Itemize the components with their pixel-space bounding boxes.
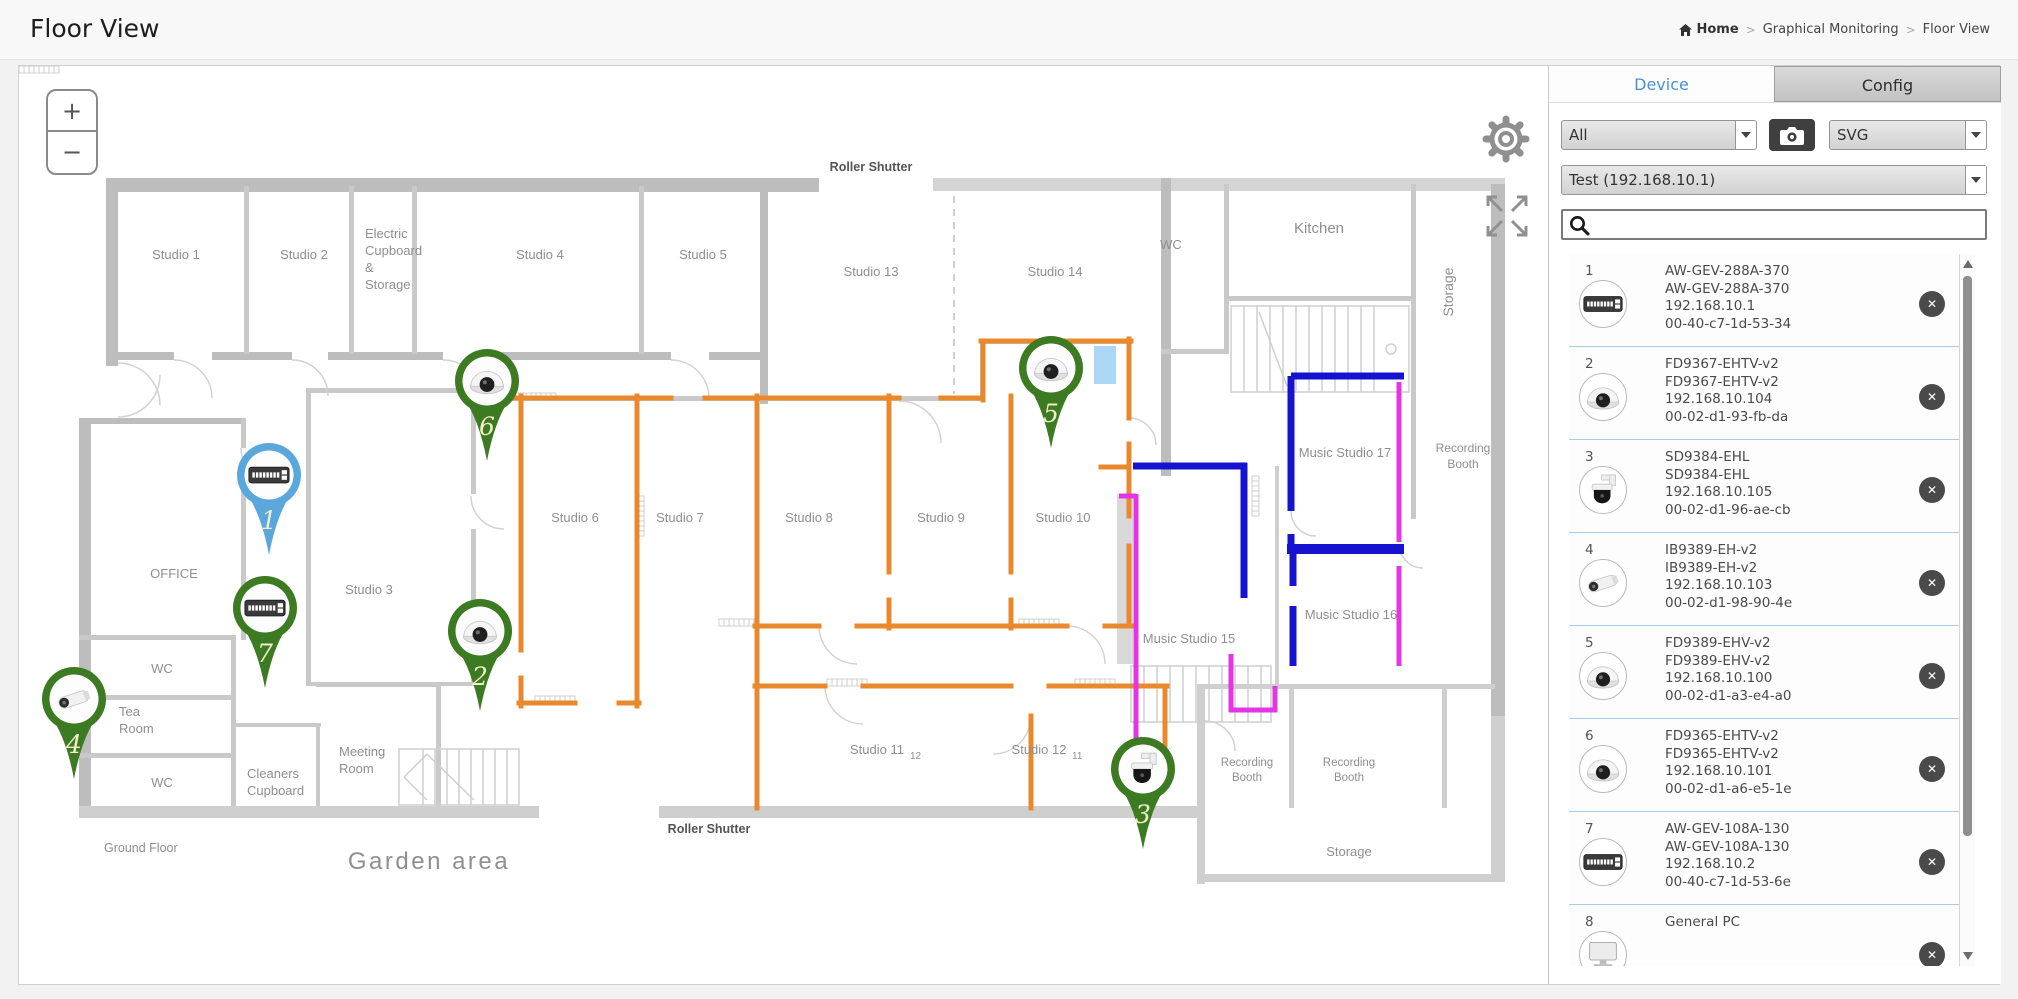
map-area: Studio 1Studio 2ElectricCupboard&Storage… [19, 66, 1548, 984]
fullscreen-button[interactable] [1481, 190, 1533, 242]
device-model: FD9367-EHTV-v2 [1665, 374, 1905, 392]
pin-number: 2 [471, 662, 488, 691]
pin-number: 7 [257, 639, 273, 668]
tab-config[interactable]: Config [1774, 66, 2001, 102]
map-pin-3[interactable]: 3 [1111, 737, 1175, 849]
pin-number: 5 [1043, 399, 1059, 428]
room-label: WC [151, 661, 173, 676]
chevron-down-icon [1965, 166, 1986, 194]
device-icon [1579, 652, 1627, 700]
device-model: AW-GEV-108A-130 [1665, 839, 1905, 857]
room-label: Studio 7 [656, 510, 704, 525]
device-ip: 192.168.10.100 [1665, 670, 1905, 688]
room-label: Roller Shutter [830, 160, 913, 174]
remove-device-button[interactable]: ✕ [1919, 849, 1945, 875]
device-number: 6 [1585, 728, 1665, 744]
page-title: Floor View [30, 14, 159, 43]
device-icon [1579, 931, 1627, 966]
remove-device-button[interactable]: ✕ [1919, 663, 1945, 689]
room-label: Studio 10 [1036, 510, 1091, 525]
panel-tabs: Device Config [1549, 66, 2001, 103]
room-label: Studio 6 [551, 510, 599, 525]
room-label: Studio 1 [152, 247, 200, 262]
search-box [1561, 209, 1987, 240]
device-model: FD9365-EHTV-v2 [1665, 746, 1905, 764]
map-pin-4[interactable]: 4 [42, 667, 106, 779]
device-number: 7 [1585, 821, 1665, 837]
expand-arrows-icon [1481, 190, 1533, 242]
device-list-item[interactable]: 1 AW-GEV-288A-370 AW-GEV-288A-370 192.16… [1569, 254, 1959, 347]
room-label: Recording [1323, 757, 1375, 769]
device-list-item[interactable]: 8 General PC ✕ [1569, 905, 1959, 966]
device-list: 1 AW-GEV-288A-370 AW-GEV-288A-370 192.16… [1569, 254, 1959, 966]
room-label: Cupboard [247, 783, 304, 798]
filter-select[interactable]: All [1561, 120, 1757, 150]
room-label: Studio 11 [850, 742, 904, 757]
device-icon [1579, 280, 1627, 328]
room-label: Room [119, 721, 154, 736]
scrollbar-thumb[interactable] [1963, 276, 1972, 836]
device-number: 1 [1585, 263, 1665, 279]
list-scrollbar[interactable] [1959, 254, 1975, 966]
breadcrumb-item-floor-view: Floor View [1923, 22, 1990, 37]
device-list-item[interactable]: 2 FD9367-EHTV-v2 FD9367-EHTV-v2 192.168.… [1569, 347, 1959, 440]
device-panel: Device Config All SVG [1548, 66, 2001, 984]
remove-device-button[interactable]: ✕ [1919, 291, 1945, 317]
remove-device-button[interactable]: ✕ [1919, 570, 1945, 596]
switch-icon [249, 467, 289, 483]
room-label-subscript: 11 [1072, 751, 1083, 762]
device-number: 4 [1585, 542, 1665, 558]
map-pin-2[interactable]: 2 [448, 599, 512, 711]
room-label: Studio 5 [679, 247, 727, 262]
zoom-control: + − [46, 89, 98, 175]
device-mac: 00-02-d1-a3-e4-a0 [1665, 688, 1905, 706]
room-label: Booth [1447, 457, 1478, 471]
room-label: Electric [365, 226, 408, 241]
room-label: OFFICE [150, 566, 198, 581]
remove-device-button[interactable]: ✕ [1919, 477, 1945, 503]
breadcrumb-separator: > [1906, 23, 1916, 37]
device-ip: 192.168.10.103 [1665, 577, 1905, 595]
fixture-highlight [1094, 346, 1116, 384]
stairs [399, 306, 1409, 805]
gear-icon [1477, 110, 1535, 168]
route-orange [499, 339, 1167, 808]
device-list-item[interactable]: 5 FD9389-EHV-v2 FD9389-EHV-v2 192.168.10… [1569, 626, 1959, 719]
room-label: Meeting [339, 744, 385, 759]
snapshot-button[interactable] [1769, 119, 1815, 151]
device-ip: 192.168.10.101 [1665, 763, 1905, 781]
scroll-up-arrow[interactable] [1963, 260, 1973, 268]
device-name: General PC [1665, 914, 1905, 932]
door-arcs [118, 360, 1423, 754]
room-label: Studio 4 [516, 247, 564, 262]
device-mac: 00-02-d1-96-ae-cb [1665, 502, 1905, 520]
device-name: IB9389-EH-v2 [1665, 542, 1905, 560]
floor-plan: Studio 1Studio 2ElectricCupboard&Storage… [19, 66, 1548, 984]
room-label: Studio 9 [917, 510, 965, 525]
pin-number: 4 [65, 730, 82, 759]
scroll-down-arrow[interactable] [1963, 952, 1973, 960]
room-label: & [365, 260, 374, 275]
route-blue [1133, 376, 1404, 666]
device-icon [1579, 559, 1627, 607]
device-icon [1579, 373, 1627, 421]
format-select[interactable]: SVG [1829, 120, 1987, 150]
room-label: WC [151, 775, 173, 790]
room-label: Studio 8 [785, 510, 833, 525]
room-label: Recording [1221, 757, 1273, 769]
room-label: Kitchen [1294, 220, 1344, 237]
chevron-down-icon [1965, 121, 1986, 149]
room-label: Studio 3 [345, 582, 393, 597]
room-label: Studio 14 [1028, 264, 1083, 279]
device-mac: 00-40-c7-1d-53-34 [1665, 316, 1905, 334]
room-label: Music Studio 17 [1299, 445, 1392, 460]
device-number: 8 [1585, 914, 1665, 930]
zoom-out-button[interactable]: − [48, 132, 96, 173]
pin-number: 3 [1135, 800, 1151, 829]
device-name: FD9365-EHTV-v2 [1665, 728, 1905, 746]
room-label: Studio 13 [844, 264, 899, 279]
device-model: FD9389-EHV-v2 [1665, 653, 1905, 671]
room-label: Cupboard [365, 243, 422, 258]
device-icon [1579, 838, 1627, 886]
pin-number: 1 [261, 506, 277, 535]
device-icon [1579, 466, 1627, 514]
device-list-item[interactable]: 6 FD9365-EHTV-v2 FD9365-EHTV-v2 192.168.… [1569, 719, 1959, 812]
remove-device-button[interactable]: ✕ [1919, 384, 1945, 410]
device-name: AW-GEV-288A-370 [1665, 263, 1905, 281]
room-label: Studio 12 [1012, 742, 1067, 757]
map-pin-5[interactable]: 5 [1019, 336, 1083, 448]
zoom-in-button[interactable]: + [48, 91, 96, 132]
room-labels: Studio 1Studio 2ElectricCupboard&Storage… [104, 160, 1490, 875]
device-list-item[interactable]: 4 IB9389-EH-v2 IB9389-EH-v2 192.168.10.1… [1569, 533, 1959, 626]
room-label: Tea [119, 704, 141, 719]
device-number: 2 [1585, 356, 1665, 372]
device-name: AW-GEV-108A-130 [1665, 821, 1905, 839]
device-model: SD9384-EHL [1665, 467, 1905, 485]
home-icon [1679, 24, 1692, 36]
room-label: Ground Floor [104, 841, 178, 855]
device-mac: 00-02-d1-a6-e5-1e [1665, 781, 1905, 799]
breadcrumb-separator: > [1746, 23, 1756, 37]
map-pin-1[interactable]: 1 [237, 443, 301, 555]
remove-device-button[interactable]: ✕ [1919, 942, 1945, 967]
device-name: SD9384-EHL [1665, 449, 1905, 467]
remove-device-button[interactable]: ✕ [1919, 756, 1945, 782]
device-ip: 192.168.10.105 [1665, 484, 1905, 502]
room-label: Music Studio 16 [1305, 607, 1398, 622]
room-label-subscript: 12 [910, 751, 922, 762]
room-label: Recording [1436, 441, 1491, 455]
device-mac: 00-40-c7-1d-53-6e [1665, 874, 1905, 892]
pin-number: 6 [479, 412, 495, 441]
room-label: Cleaners [247, 766, 300, 781]
tab-device[interactable]: Device [1549, 66, 1774, 102]
search-input[interactable] [1563, 211, 1985, 238]
map-pin-6[interactable]: 6 [455, 349, 519, 461]
device-name: FD9367-EHTV-v2 [1665, 356, 1905, 374]
device-mac: 00-02-d1-93-fb-da [1665, 409, 1905, 427]
room-label: Booth [1232, 772, 1262, 784]
top-header: Floor View Home > Graphical Monitoring >… [0, 0, 2018, 60]
device-model: IB9389-EH-v2 [1665, 560, 1905, 578]
breadcrumb-home[interactable]: Home [1679, 22, 1738, 37]
device-ip: 192.168.10.104 [1665, 391, 1905, 409]
map-pins: 1234567 [42, 336, 1175, 849]
camera-icon [1779, 125, 1805, 146]
breadcrumb-item-graphical-monitoring[interactable]: Graphical Monitoring [1763, 22, 1899, 37]
room-label: Studio 2 [280, 247, 328, 262]
switch-icon [245, 600, 285, 616]
settings-button[interactable] [1477, 110, 1535, 168]
breadcrumb: Home > Graphical Monitoring > Floor View [1679, 22, 1990, 37]
device-list-item[interactable]: 3 SD9384-EHL SD9384-EHL 192.168.10.105 0… [1569, 440, 1959, 533]
device-list-item[interactable]: 7 AW-GEV-108A-130 AW-GEV-108A-130 192.16… [1569, 812, 1959, 905]
floor-view-card: Studio 1Studio 2ElectricCupboard&Storage… [18, 65, 2000, 985]
room-label: WC [1160, 237, 1182, 252]
device-ip: 192.168.10.1 [1665, 298, 1905, 316]
search-icon [1568, 214, 1592, 238]
room-label: Roller Shutter [668, 822, 751, 836]
device-ip: 192.168.10.2 [1665, 856, 1905, 874]
room-label: Storage [365, 277, 411, 292]
room-label: Music Studio 15 [1143, 631, 1236, 646]
device-mac: 00-02-d1-98-90-4e [1665, 595, 1905, 613]
device-model: AW-GEV-288A-370 [1665, 281, 1905, 299]
room-label: Storage [1326, 844, 1372, 859]
device-icon [1579, 745, 1627, 793]
room-label: Storage [1440, 267, 1456, 316]
room-label: Room [339, 761, 374, 776]
device-number: 3 [1585, 449, 1665, 465]
device-source-select[interactable]: Test (192.168.10.1) [1561, 165, 1987, 195]
chevron-down-icon [1735, 121, 1756, 149]
room-label: Booth [1334, 772, 1364, 784]
room-label: Garden area [348, 848, 510, 875]
device-name: FD9389-EHV-v2 [1665, 635, 1905, 653]
device-number: 5 [1585, 635, 1665, 651]
